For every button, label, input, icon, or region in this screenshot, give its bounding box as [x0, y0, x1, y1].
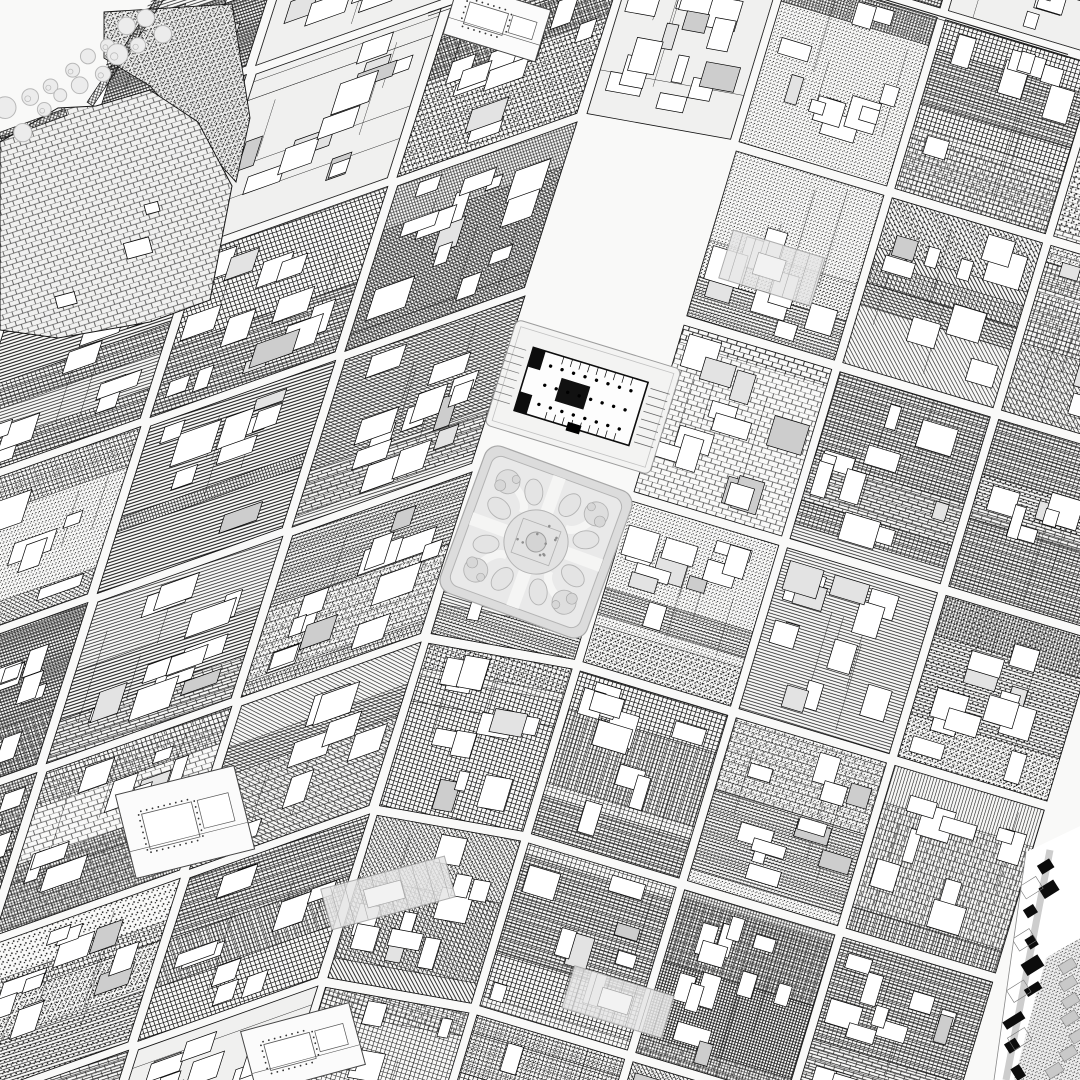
tree-canopy [54, 89, 67, 102]
map-canvas [0, 0, 1080, 1080]
historic-city-map [0, 0, 1080, 1080]
tree-canopy [71, 77, 88, 94]
tree-canopy [14, 124, 32, 142]
building-footprint [489, 709, 528, 738]
tree-canopy [118, 17, 135, 34]
tree-canopy [137, 9, 155, 27]
tree-canopy [154, 25, 171, 42]
tree-canopy [80, 49, 95, 64]
